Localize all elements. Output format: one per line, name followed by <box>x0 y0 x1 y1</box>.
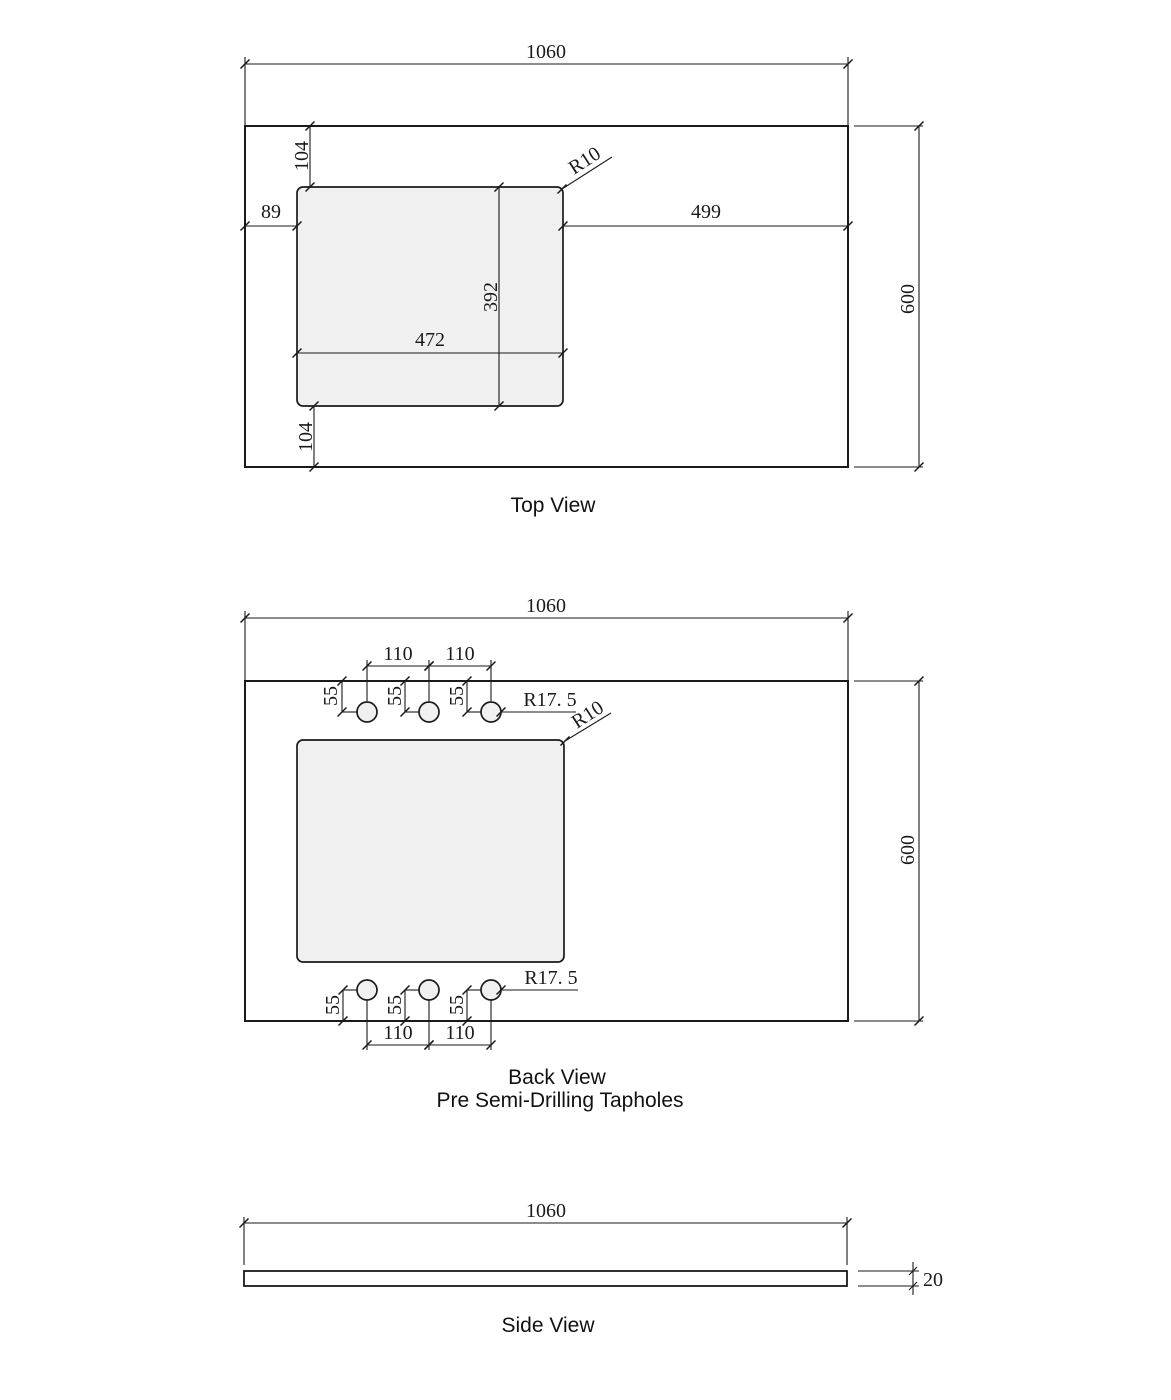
taphole-top-3 <box>481 702 501 722</box>
technical-drawing-canvas: 1060 600 104 89 499 392 472 <box>0 0 1171 1400</box>
taphole-radius-label: R17. 5 <box>524 967 577 989</box>
back-view-subtitle: Pre Semi-Drilling Tapholes <box>436 1089 683 1112</box>
side-dim-overall-width: 1060 <box>244 1200 847 1265</box>
dim-label-taphole-offset: 55 <box>384 995 406 1015</box>
top-view-title: Top View <box>511 494 597 517</box>
taphole-top-2 <box>419 702 439 722</box>
dim-label-taphole-offset: 55 <box>446 686 468 706</box>
dim-label-taphole-offset: 55 <box>320 686 342 706</box>
dim-label-taphole-spacing: 110 <box>445 643 474 665</box>
taphole-bottom-1 <box>357 980 377 1000</box>
top-dim-overall-depth: 600 <box>854 126 923 467</box>
dim-label-taphole-spacing: 110 <box>383 643 412 665</box>
dim-label-cutout-offset-top: 104 <box>291 141 313 171</box>
taphole-radius-label: R17. 5 <box>523 689 576 711</box>
top-view-sink-cutout <box>297 187 563 406</box>
dim-label-overall-depth: 600 <box>897 835 919 865</box>
back-dim-overall-width: 1060 <box>245 595 848 681</box>
dim-label-taphole-offset: 55 <box>322 995 344 1015</box>
taphole-bottom-2 <box>419 980 439 1000</box>
back-dim-overall-depth: 600 <box>854 681 923 1021</box>
dim-label-overall-depth: 600 <box>897 284 919 314</box>
dim-label-taphole-offset: 55 <box>446 995 468 1015</box>
top-dim-overall-width: 1060 <box>245 41 848 126</box>
top-view: 1060 600 104 89 499 392 472 <box>245 41 923 517</box>
dim-label-cutout-offset-left: 89 <box>261 201 281 223</box>
dim-label-taphole-spacing: 110 <box>445 1022 474 1044</box>
dim-label-cutout-to-right-edge: 499 <box>691 201 721 223</box>
taphole-bottom-3 <box>481 980 501 1000</box>
side-dim-thickness: 20 <box>858 1262 943 1295</box>
side-view: 1060 20 Side View <box>244 1200 943 1337</box>
side-view-slab-outline <box>244 1271 847 1286</box>
drawing-sheet: 1060 600 104 89 499 392 472 <box>0 0 1171 1400</box>
dim-label-overall-width: 1060 <box>526 595 566 617</box>
dim-label-cutout-width: 472 <box>415 329 445 351</box>
dim-label-cutout-offset-bottom: 104 <box>295 422 317 452</box>
dim-label-taphole-offset: 55 <box>384 686 406 706</box>
back-view: 1060 600 110 110 55 <box>245 595 923 1112</box>
dim-label-overall-width: 1060 <box>526 1200 566 1222</box>
dim-label-cutout-depth: 392 <box>480 282 502 312</box>
side-view-title: Side View <box>501 1314 595 1337</box>
back-view-title: Back View <box>508 1066 606 1089</box>
dim-label-overall-width: 1060 <box>526 41 566 63</box>
dim-label-thickness: 20 <box>923 1269 943 1291</box>
taphole-top-1 <box>357 702 377 722</box>
dim-label-taphole-spacing: 110 <box>383 1022 412 1044</box>
back-view-sink-cutout <box>297 740 564 962</box>
